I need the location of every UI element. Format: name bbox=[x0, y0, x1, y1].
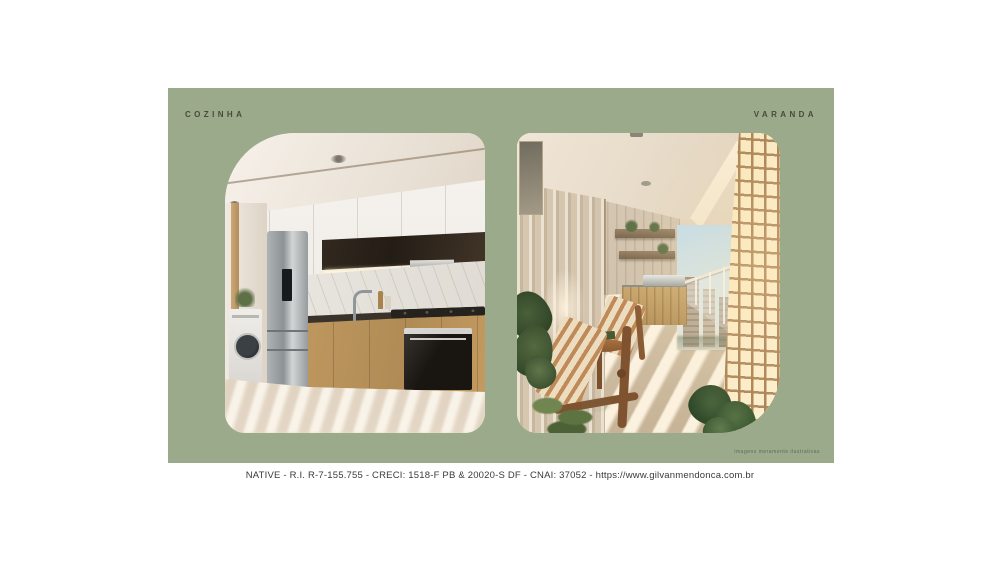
balcony-shelf bbox=[615, 229, 675, 238]
balcony-ceiling-light bbox=[641, 181, 651, 186]
legal-footer-text: NATIVE - R.I. R-7-155.755 - CRECI: 1518-… bbox=[0, 470, 1000, 481]
balcony-railing-post bbox=[695, 277, 697, 305]
slide-page: { "slide": { "panel_color": "#9aaa8a", "… bbox=[0, 0, 1000, 562]
kitchen-washing-machine bbox=[229, 309, 262, 389]
balcony-shelf-plant bbox=[657, 242, 669, 254]
balcony-photo bbox=[517, 133, 780, 433]
kitchen-washer-panel bbox=[232, 315, 259, 318]
balcony-railing-post bbox=[723, 267, 725, 324]
kitchen-oven-handle bbox=[410, 338, 466, 340]
balcony-shelf-plant bbox=[649, 221, 660, 232]
slide-panel: COZINHA VARANDA bbox=[168, 88, 834, 463]
kitchen-refrigerator bbox=[267, 231, 308, 391]
kitchen-photo bbox=[225, 133, 485, 433]
kitchen-faucet bbox=[353, 290, 372, 321]
kitchen-spotlight bbox=[331, 155, 346, 163]
kitchen-washer-door bbox=[234, 333, 261, 360]
balcony-shelf-plant bbox=[625, 219, 638, 232]
kitchen-plant bbox=[235, 287, 255, 307]
kitchen-refrigerator-door-seam bbox=[267, 330, 308, 332]
kitchen-oven bbox=[404, 328, 472, 390]
balcony-grill bbox=[643, 275, 685, 286]
kitchen-section-label: COZINHA bbox=[185, 110, 245, 119]
balcony-glass-door bbox=[519, 141, 543, 215]
balcony-section-label: VARANDA bbox=[754, 110, 817, 119]
kitchen-bottle bbox=[385, 296, 391, 309]
balcony-chair-knob bbox=[617, 369, 626, 378]
kitchen-bottle bbox=[378, 291, 383, 309]
balcony-fern bbox=[529, 385, 613, 433]
kitchen-refrigerator-display bbox=[282, 269, 292, 301]
balcony-railing-post bbox=[709, 272, 711, 314]
balcony-ceiling-fixture bbox=[630, 133, 643, 137]
image-disclaimer-watermark: imagens meramente ilustrativas bbox=[734, 449, 820, 455]
kitchen-refrigerator-door-seam bbox=[267, 349, 308, 351]
balcony-wall-corner bbox=[604, 199, 606, 295]
